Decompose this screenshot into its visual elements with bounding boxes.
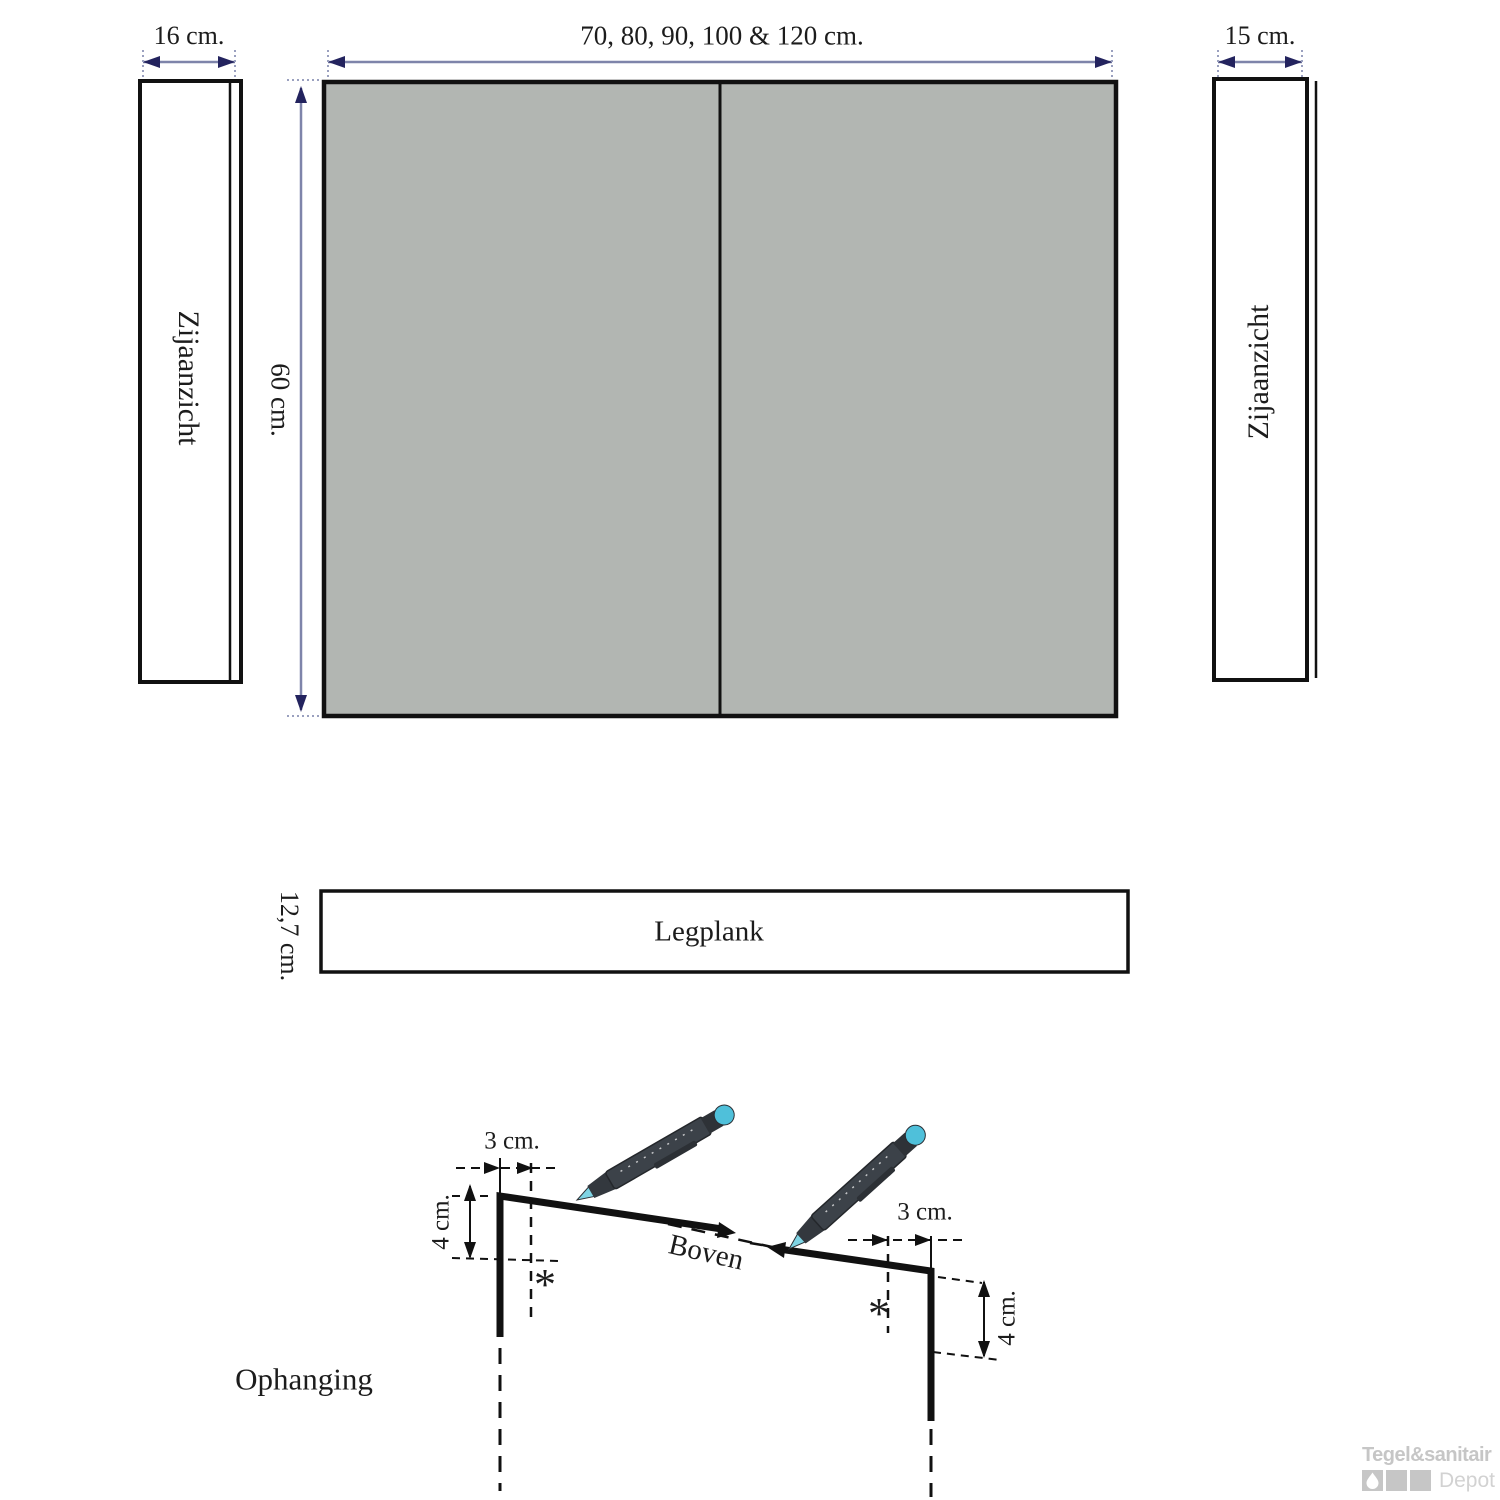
brand-name: Tegel&sanitair — [1362, 1444, 1495, 1466]
shelf-height-dimension-label: 12,7 cm. — [276, 891, 302, 981]
shelf-label: Legplank — [654, 918, 764, 947]
mounting-section-label: Ophanging — [235, 1364, 373, 1395]
right-mounting-bracket — [750, 1234, 1000, 1497]
front-width-dimension-label: 70, 80, 90, 100 & 120 cm. — [580, 23, 864, 50]
left-side-width-dimension-line — [143, 50, 235, 78]
left-bracket-offset-dimension-label: 3 cm. — [484, 1129, 540, 1154]
water-drop-icon — [1362, 1470, 1383, 1491]
front-height-dimension-label: 60 cm. — [267, 363, 294, 437]
left-side-view-label: Zijaanzicht — [173, 311, 203, 446]
right-side-view-label: Zijaanzicht — [1244, 305, 1274, 440]
left-bracket-drill-mark: * — [534, 1263, 556, 1307]
right-side-width-dimension-label: 15 cm. — [1225, 23, 1296, 49]
right-side-width-dimension-line — [1218, 50, 1302, 77]
pen-icon — [782, 1121, 931, 1259]
logo-square — [1386, 1470, 1407, 1491]
cabinet-dimension-diagram — [0, 0, 1500, 1500]
right-bracket-drop-dimension-label: 4 cm. — [995, 1290, 1020, 1346]
technical-drawing-page: 16 cm. 70, 80, 90, 100 & 120 cm. 15 cm. … — [0, 0, 1500, 1500]
brand-product-line: Depot — [1439, 1470, 1495, 1491]
left-side-width-dimension-label: 16 cm. — [154, 23, 225, 49]
left-bracket-drop-dimension-label: 4 cm. — [429, 1194, 454, 1250]
logo-square — [1410, 1470, 1431, 1491]
pen-icon — [572, 1101, 739, 1211]
left-mounting-bracket — [452, 1158, 736, 1491]
right-bracket-offset-dimension-label: 3 cm. — [897, 1200, 953, 1225]
front-view-width-dimension-line — [328, 50, 1112, 78]
brand-watermark: Tegel&sanitair Depot — [1362, 1444, 1495, 1491]
front-view-cabinet — [324, 82, 1116, 716]
right-bracket-drill-mark: * — [868, 1292, 890, 1336]
